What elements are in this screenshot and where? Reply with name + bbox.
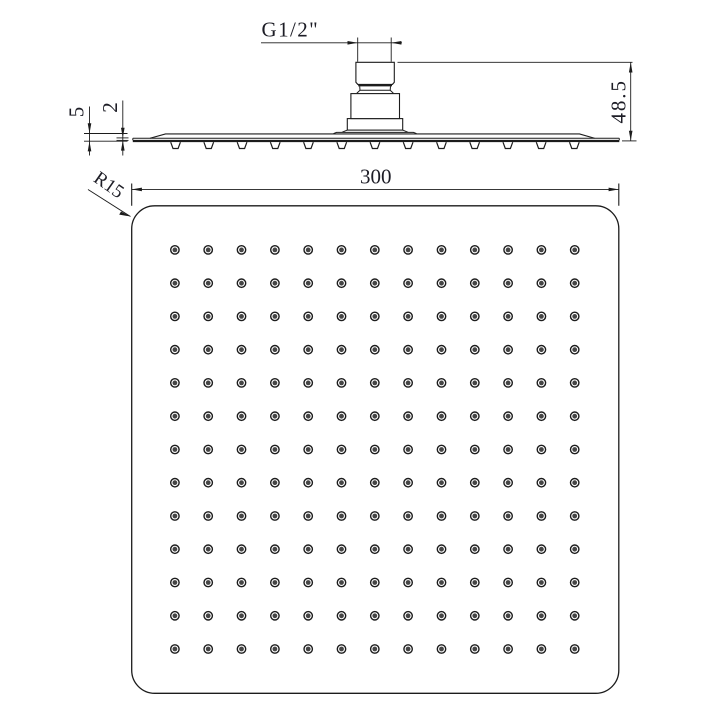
svg-text:48.5: 48.5 bbox=[607, 79, 631, 123]
svg-text:300: 300 bbox=[360, 165, 392, 189]
svg-text:G1/2": G1/2" bbox=[262, 18, 320, 42]
svg-text:2: 2 bbox=[98, 102, 122, 113]
svg-text:R15: R15 bbox=[90, 168, 128, 203]
svg-text:5: 5 bbox=[65, 107, 89, 118]
